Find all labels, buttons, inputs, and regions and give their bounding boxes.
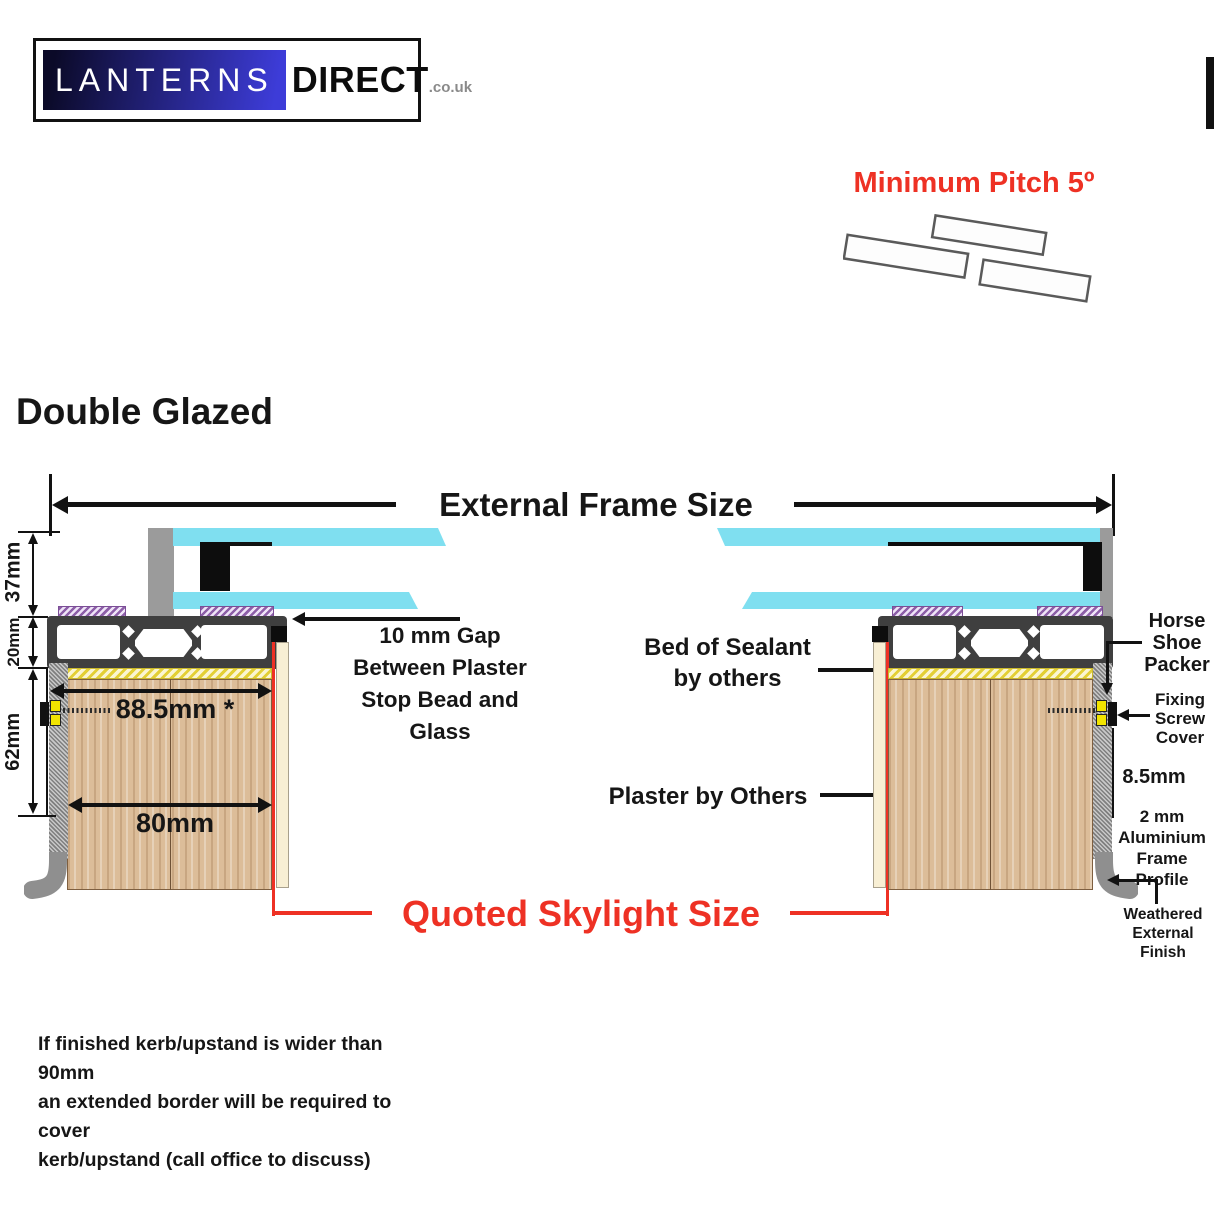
dim-37-line xyxy=(32,536,34,614)
fixing-arrow-line xyxy=(1128,714,1150,717)
dim-62-arrow-up-icon xyxy=(28,669,38,680)
weathered-leader-v xyxy=(1155,879,1158,904)
glass-spacer-line-right xyxy=(888,542,1085,546)
lanterns-direct-logo: LANTERNS DIRECT .co.uk xyxy=(33,38,421,122)
plaster-arrow-line xyxy=(820,793,878,797)
alu-line-3: Frame Profile xyxy=(1110,848,1214,890)
plaster-stop-bead-right xyxy=(872,626,888,642)
edge-gap-leader-line xyxy=(1112,728,1114,818)
dim-37-arrow-up-icon xyxy=(28,533,38,544)
fixing-line-2: Screw xyxy=(1146,709,1214,728)
horseshoe-leader-h xyxy=(1108,641,1142,644)
dim-62-label: 62mm xyxy=(2,712,26,772)
ext-frame-line-right xyxy=(794,502,1096,507)
minimum-pitch-label: Minimum Pitch 5º xyxy=(828,166,1120,200)
dim-62-line xyxy=(32,672,34,812)
weathered-line-1: Weathered xyxy=(1118,905,1208,924)
plaster-annotation: Plaster by Others xyxy=(598,783,818,811)
frame-edge-left xyxy=(148,528,174,618)
screw-cover-left-top xyxy=(50,700,61,712)
horseshoe-arrow-icon xyxy=(1101,683,1113,695)
kerb-joint-line-right xyxy=(990,679,991,890)
dim-80-line xyxy=(80,803,260,807)
horseshoe-annotation: Horse Shoe Packer xyxy=(1140,610,1214,676)
sealant-line-2: by others xyxy=(620,663,835,694)
screw-cover-right-bottom xyxy=(1096,714,1107,726)
weathered-line-3: Finish xyxy=(1118,943,1208,962)
footer-note: If finished kerb/upstand is wider than 9… xyxy=(38,1030,438,1175)
alu-profile-annotation: 2 mm Aluminium Frame Profile xyxy=(1110,806,1214,890)
horseshoe-line-1: Horse xyxy=(1140,610,1214,632)
screen-edge-bar xyxy=(1206,57,1214,129)
gap-line-4: Glass xyxy=(345,716,535,748)
fixing-arrow-icon xyxy=(1117,709,1129,721)
tick-531 xyxy=(18,531,60,533)
gap-annotation: 10 mm Gap Between Plaster Stop Bead and … xyxy=(345,620,535,748)
sealant-line-1: Bed of Sealant xyxy=(620,632,835,663)
dim-37-label: 37mm xyxy=(2,542,27,602)
dim-20-label: 20mm xyxy=(4,610,24,674)
sealant-annotation: Bed of Sealant by others xyxy=(620,632,835,694)
edge-gap-label: 8.5mm xyxy=(1118,766,1190,790)
footer-line-3: kerb/upstand (call office to discuss) xyxy=(38,1146,438,1175)
ext-frame-arrow-right-icon xyxy=(1096,496,1112,514)
dim-20-arrow-up-icon xyxy=(28,617,38,628)
ext-frame-tick-right xyxy=(1112,474,1115,536)
fixing-screw-annotation: Fixing Screw Cover xyxy=(1146,690,1214,747)
glass-spacer-bar-right xyxy=(1083,542,1102,591)
pitch-diagram xyxy=(843,214,1095,310)
dim-20-arrow-down-icon xyxy=(28,656,38,667)
alu-line-2: Aluminium xyxy=(1110,827,1214,848)
sealant-bed-left xyxy=(67,668,272,679)
logo-word-direct: DIRECT xyxy=(292,59,429,101)
dim-80-label: 80mm xyxy=(105,808,245,840)
quoted-skylight-size-label: Quoted Skylight Size xyxy=(375,893,787,935)
weathered-line-2: External xyxy=(1118,924,1208,943)
sealant-bed-right xyxy=(888,668,1093,679)
dim-885-label: 88.5mm * xyxy=(95,694,255,726)
quoted-connector-right xyxy=(790,911,889,915)
aluminium-frame-profile-left xyxy=(47,616,287,669)
footer-line-2: an extended border will be required to c… xyxy=(38,1088,438,1146)
plaster-stop-bead-left xyxy=(271,626,287,642)
glass-spacer-bar-left xyxy=(200,542,230,591)
glass-spacer-line-left xyxy=(230,542,272,546)
sealant-arrow-line xyxy=(818,668,880,672)
alu-line-1: 2 mm xyxy=(1110,806,1214,827)
weathered-finish-foot-left xyxy=(24,852,76,902)
dim-37-arrow-down-icon xyxy=(28,605,38,616)
ext-frame-size-label: External Frame Size xyxy=(396,486,796,525)
dim-62-arrow-down-icon xyxy=(28,803,38,814)
dim-80-arrow-right-icon xyxy=(258,797,272,813)
screw-cover-right-top xyxy=(1096,700,1107,712)
skylight-section-diagram: LANTERNS DIRECT .co.uk Minimum Pitch 5º … xyxy=(0,0,1214,1214)
aluminium-frame-profile-right xyxy=(878,616,1113,669)
fixing-line-3: Cover xyxy=(1146,728,1214,747)
ext-frame-line-left xyxy=(66,502,396,507)
logo-word-lanterns: LANTERNS xyxy=(55,62,274,99)
screw-head-right xyxy=(1108,702,1117,726)
dim-885-arrow-right-icon xyxy=(258,683,272,699)
fixing-line-1: Fixing xyxy=(1146,690,1214,709)
logo-suffix: .co.uk xyxy=(429,79,472,96)
dim-885-line xyxy=(62,689,260,693)
plaster-stop-strip-left xyxy=(276,642,289,888)
quoted-size-line-left xyxy=(272,642,275,916)
section-title: Double Glazed xyxy=(16,390,316,434)
screw-cover-left-bottom xyxy=(50,714,61,726)
extension-line-left xyxy=(46,669,48,815)
horseshoe-line-2: Shoe xyxy=(1140,632,1214,654)
quoted-connector-left xyxy=(275,911,372,915)
logo-blue-panel: LANTERNS xyxy=(43,50,286,110)
weathered-leader-h xyxy=(1118,879,1158,882)
gap-line-3: Stop Bead and xyxy=(345,684,535,716)
weathered-annotation: Weathered External Finish xyxy=(1118,905,1208,962)
gap-line-2: Between Plaster xyxy=(345,652,535,684)
horseshoe-leader-v xyxy=(1106,641,1109,683)
screw-shaft-right xyxy=(1048,708,1096,713)
gap-line-1: 10 mm Gap xyxy=(345,620,535,652)
tick-815 xyxy=(18,815,56,817)
plaster-stop-strip-right xyxy=(873,642,886,888)
footer-line-1: If finished kerb/upstand is wider than 9… xyxy=(38,1030,438,1088)
horseshoe-line-3: Packer xyxy=(1140,654,1214,676)
